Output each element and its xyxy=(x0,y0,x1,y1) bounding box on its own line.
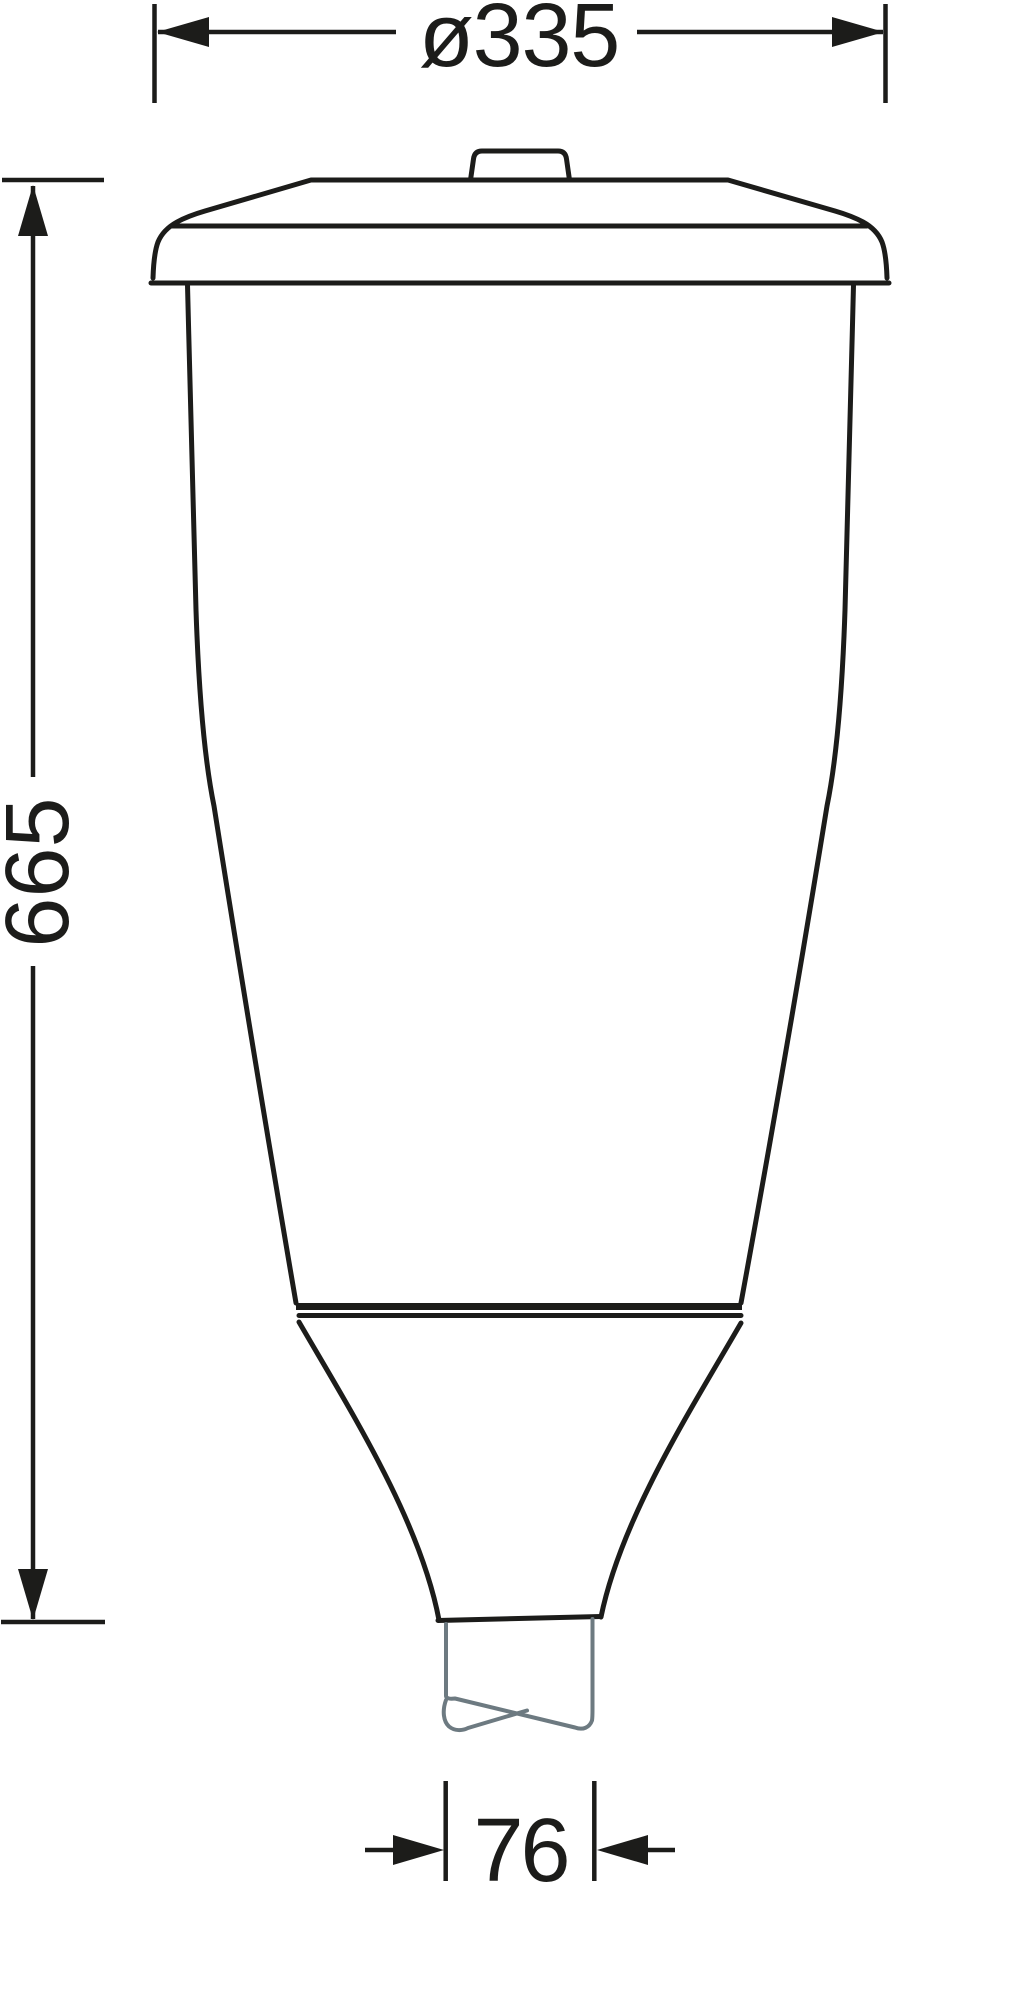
svg-text:665: 665 xyxy=(0,797,88,947)
svg-text:76: 76 xyxy=(473,1801,567,1901)
svg-text:ø335: ø335 xyxy=(419,0,619,86)
